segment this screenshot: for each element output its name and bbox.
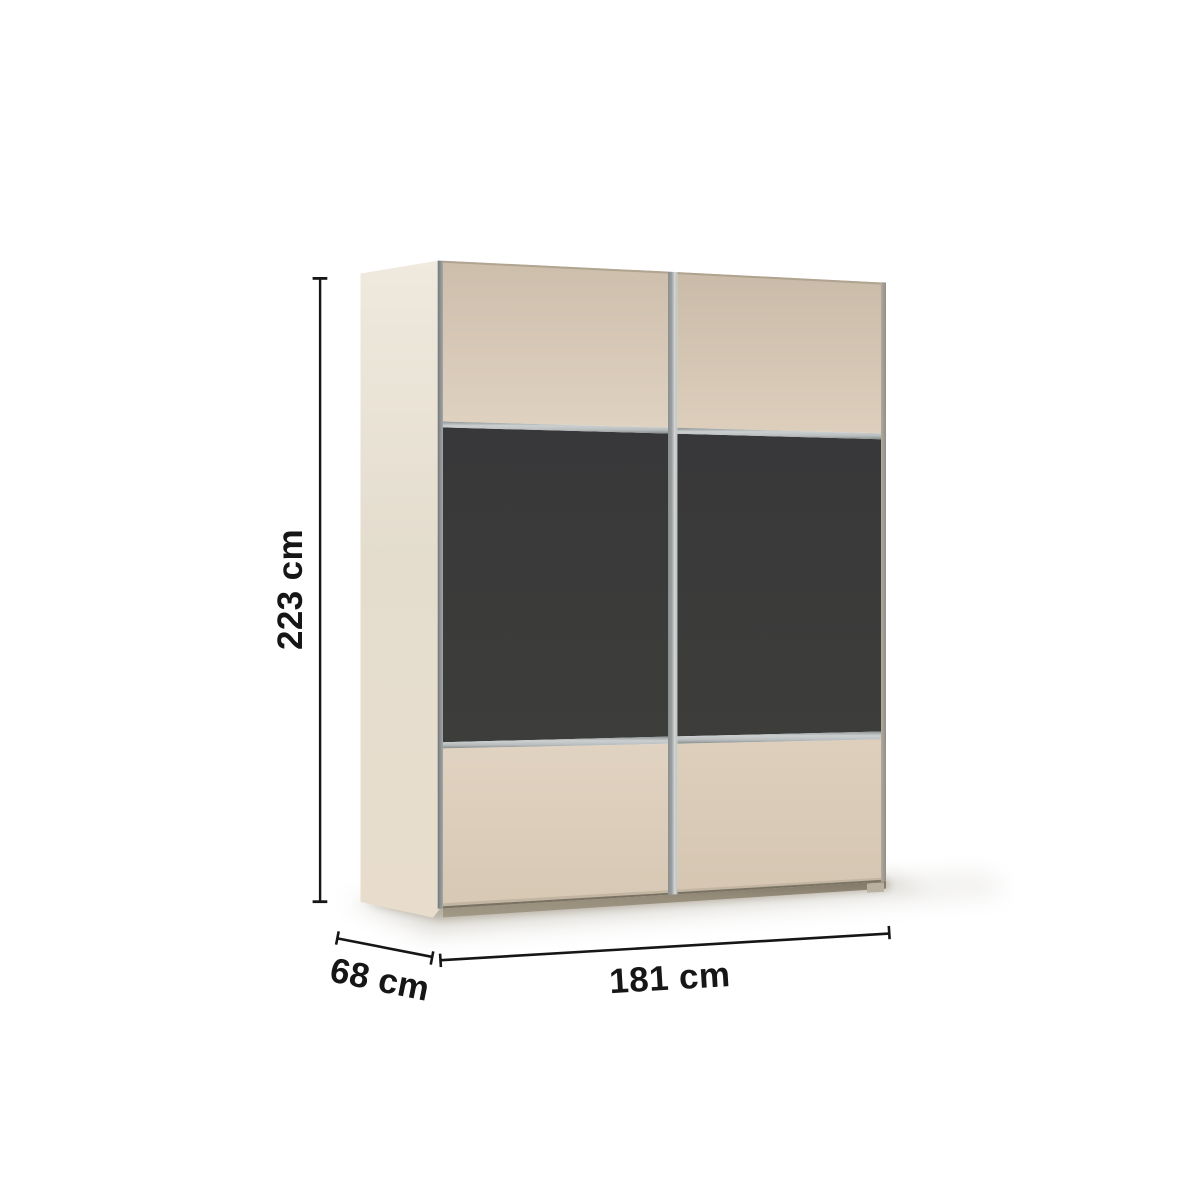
- svg-text:223 cm: 223 cm: [271, 529, 310, 650]
- svg-text:181 cm: 181 cm: [608, 955, 731, 1001]
